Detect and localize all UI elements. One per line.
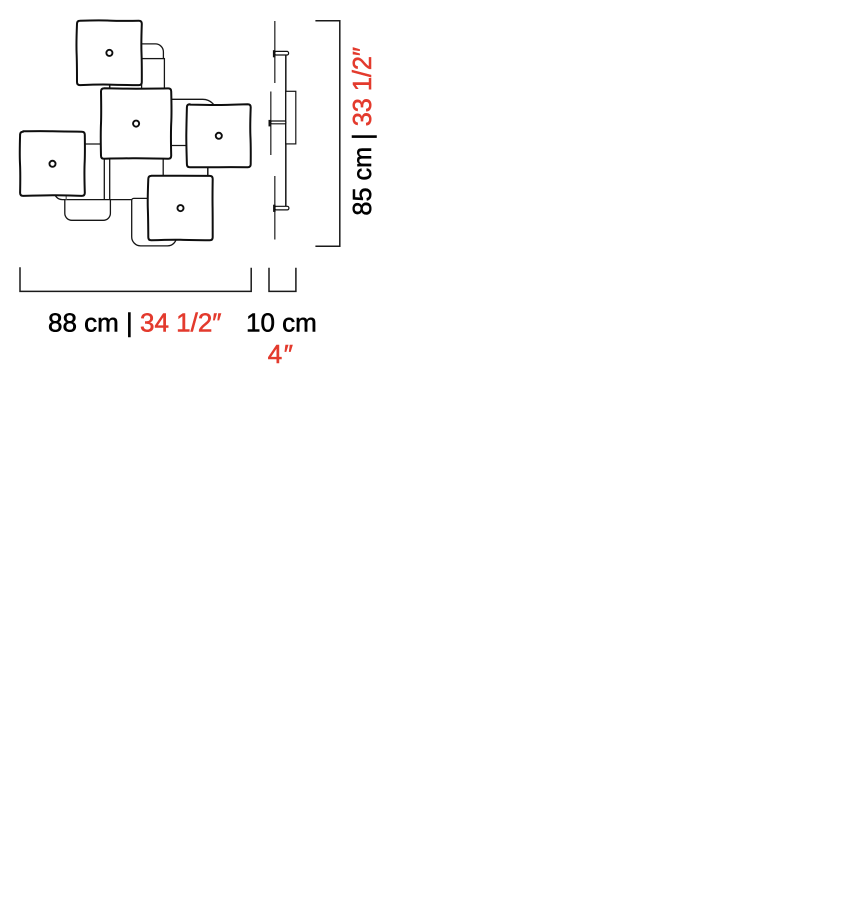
svg-text:88 cm | 34 1/2″: 88 cm | 34 1/2″ (48, 308, 222, 338)
svg-text:10 cm: 10 cm (246, 308, 317, 338)
svg-text:4″: 4″ (268, 339, 293, 369)
svg-text:85 cm | 33 1/2″: 85 cm | 33 1/2″ (347, 47, 377, 216)
